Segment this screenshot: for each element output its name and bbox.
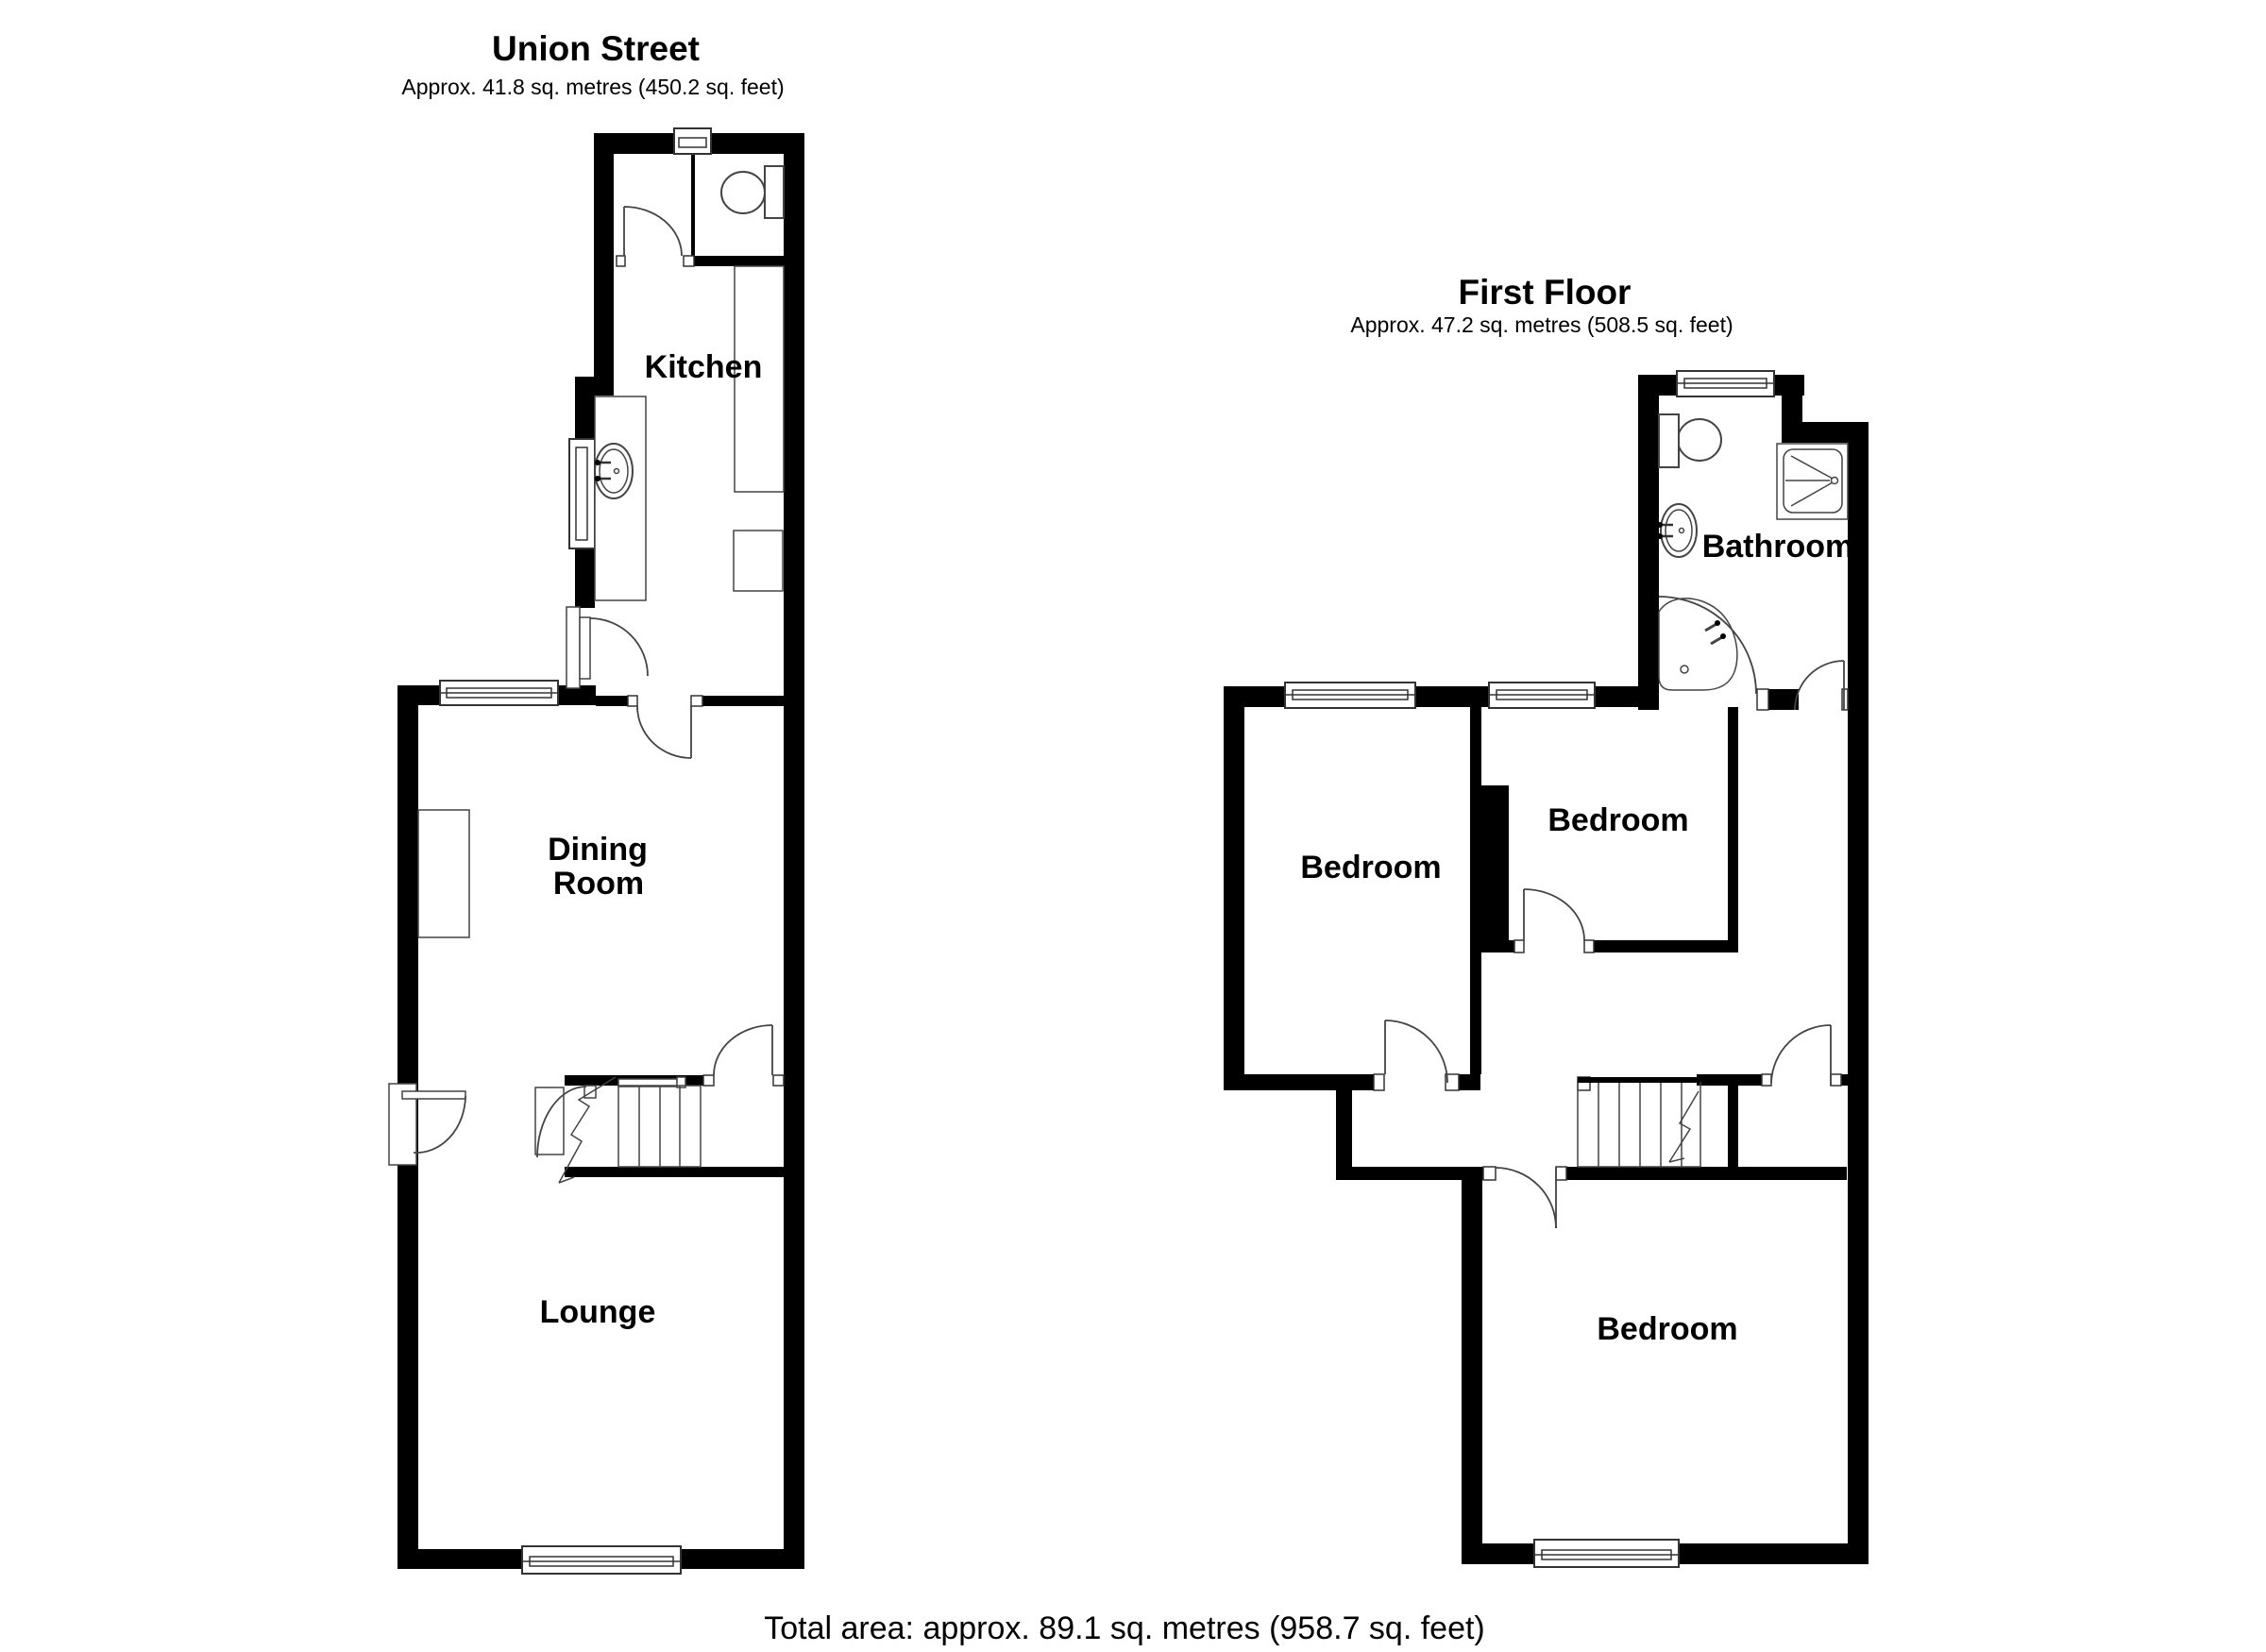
svg-text:Union Street: Union Street	[492, 29, 700, 68]
svg-text:Kitchen: Kitchen	[645, 349, 763, 385]
svg-text:Bedroom: Bedroom	[1300, 850, 1441, 885]
svg-text:Bathroom: Bathroom	[1702, 529, 1854, 565]
svg-text:Room: Room	[553, 866, 644, 902]
svg-text:Bedroom: Bedroom	[1547, 802, 1688, 838]
svg-text:Approx. 41.8 sq. metres (450.2: Approx. 41.8 sq. metres (450.2 sq. feet)	[401, 75, 784, 99]
svg-text:Bedroom: Bedroom	[1597, 1311, 1737, 1347]
svg-text:First Floor: First Floor	[1459, 273, 1632, 312]
svg-text:Approx. 47.2 sq. metres (508.5: Approx. 47.2 sq. metres (508.5 sq. feet)	[1350, 312, 1733, 337]
svg-text:Lounge: Lounge	[540, 1294, 656, 1330]
svg-text:Dining: Dining	[548, 832, 648, 868]
svg-text:Total area: approx. 89.1 sq. m: Total area: approx. 89.1 sq. metres (958…	[764, 1610, 1485, 1646]
